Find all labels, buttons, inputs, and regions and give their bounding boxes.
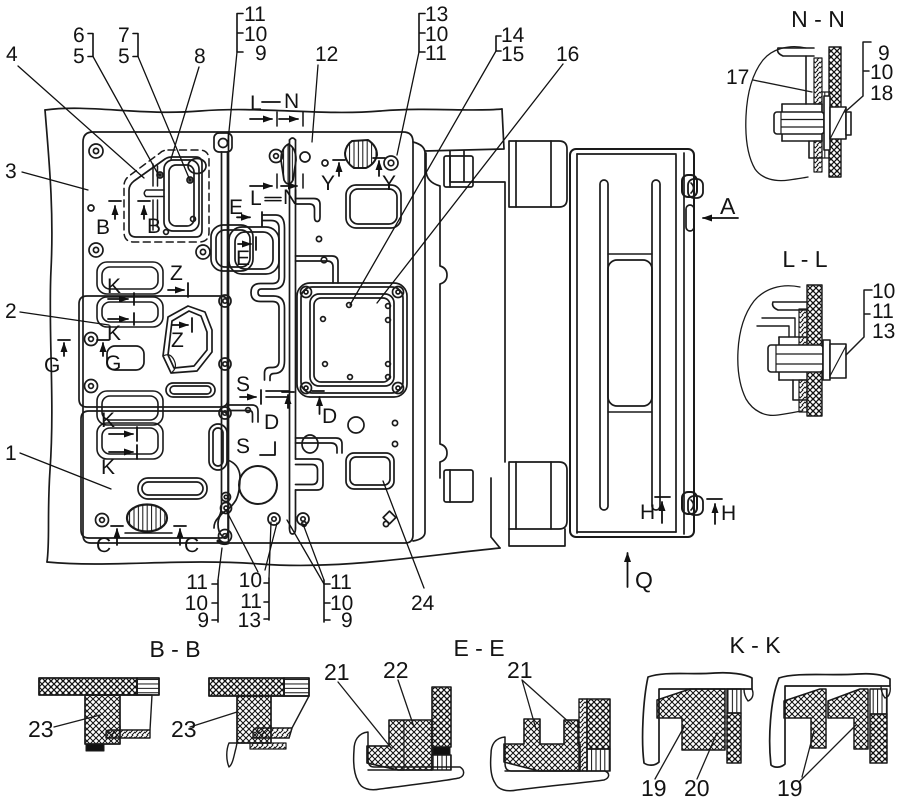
svg-text:21: 21 bbox=[324, 659, 350, 685]
svg-text:N: N bbox=[284, 90, 299, 113]
svg-text:S: S bbox=[236, 373, 250, 396]
svg-text:7: 7 bbox=[118, 24, 130, 47]
svg-text:9: 9 bbox=[341, 609, 353, 632]
svg-text:8: 8 bbox=[194, 45, 206, 68]
svg-text:19: 19 bbox=[777, 775, 803, 801]
svg-text:11: 11 bbox=[425, 42, 447, 65]
svg-text:H: H bbox=[721, 502, 736, 525]
svg-text:Z: Z bbox=[170, 262, 183, 285]
svg-text:5: 5 bbox=[73, 45, 85, 68]
svg-text:11: 11 bbox=[330, 571, 352, 594]
svg-text:N - N: N - N bbox=[791, 6, 845, 32]
svg-text:20: 20 bbox=[684, 775, 710, 801]
svg-text:21: 21 bbox=[507, 657, 533, 683]
svg-text:K: K bbox=[107, 322, 121, 345]
svg-text:S: S bbox=[236, 435, 250, 458]
svg-text:H: H bbox=[640, 501, 655, 524]
svg-text:11: 11 bbox=[186, 571, 208, 594]
svg-text:G: G bbox=[44, 354, 60, 377]
svg-text:N: N bbox=[283, 186, 298, 209]
svg-text:Y: Y bbox=[382, 172, 396, 195]
svg-text:B - B: B - B bbox=[149, 636, 200, 662]
svg-text:Q: Q bbox=[635, 567, 653, 593]
svg-text:C: C bbox=[184, 534, 199, 557]
svg-text:5: 5 bbox=[118, 45, 130, 68]
svg-text:4: 4 bbox=[6, 43, 18, 66]
svg-text:9: 9 bbox=[197, 609, 209, 632]
svg-text:10: 10 bbox=[239, 569, 262, 592]
svg-text:17: 17 bbox=[726, 66, 749, 89]
svg-text:9: 9 bbox=[255, 42, 267, 65]
svg-text:C: C bbox=[96, 534, 111, 557]
svg-text:Y: Y bbox=[321, 172, 335, 195]
svg-text:K: K bbox=[107, 275, 121, 298]
svg-text:15: 15 bbox=[501, 43, 524, 66]
svg-text:K: K bbox=[101, 456, 115, 479]
svg-text:A: A bbox=[720, 193, 736, 219]
svg-text:L: L bbox=[250, 187, 262, 210]
svg-text:22: 22 bbox=[383, 657, 409, 683]
svg-text:Z: Z bbox=[171, 329, 184, 352]
svg-text:13: 13 bbox=[238, 609, 261, 632]
svg-text:1: 1 bbox=[5, 442, 17, 465]
svg-text:E: E bbox=[229, 196, 243, 219]
svg-text:L: L bbox=[250, 92, 262, 115]
svg-text:G: G bbox=[105, 352, 121, 375]
svg-text:K - K: K - K bbox=[729, 632, 781, 658]
svg-text:19: 19 bbox=[641, 775, 667, 801]
svg-text:10: 10 bbox=[870, 61, 893, 84]
svg-text:12: 12 bbox=[315, 43, 338, 66]
svg-text:E: E bbox=[236, 247, 250, 270]
svg-text:6: 6 bbox=[73, 24, 85, 47]
svg-text:D: D bbox=[264, 411, 279, 434]
svg-text:18: 18 bbox=[870, 82, 893, 105]
svg-text:2: 2 bbox=[5, 300, 17, 323]
svg-text:23: 23 bbox=[171, 716, 197, 742]
svg-text:K: K bbox=[101, 409, 115, 432]
svg-text:24: 24 bbox=[411, 592, 435, 615]
svg-text:3: 3 bbox=[5, 160, 17, 183]
svg-text:B: B bbox=[147, 215, 161, 238]
svg-text:23: 23 bbox=[28, 716, 54, 742]
svg-text:L - L: L - L bbox=[782, 246, 827, 272]
svg-text:E - E: E - E bbox=[453, 635, 504, 661]
svg-text:B: B bbox=[96, 216, 110, 239]
svg-text:D: D bbox=[322, 405, 337, 428]
svg-text:13: 13 bbox=[872, 320, 895, 343]
svg-text:16: 16 bbox=[556, 43, 579, 66]
